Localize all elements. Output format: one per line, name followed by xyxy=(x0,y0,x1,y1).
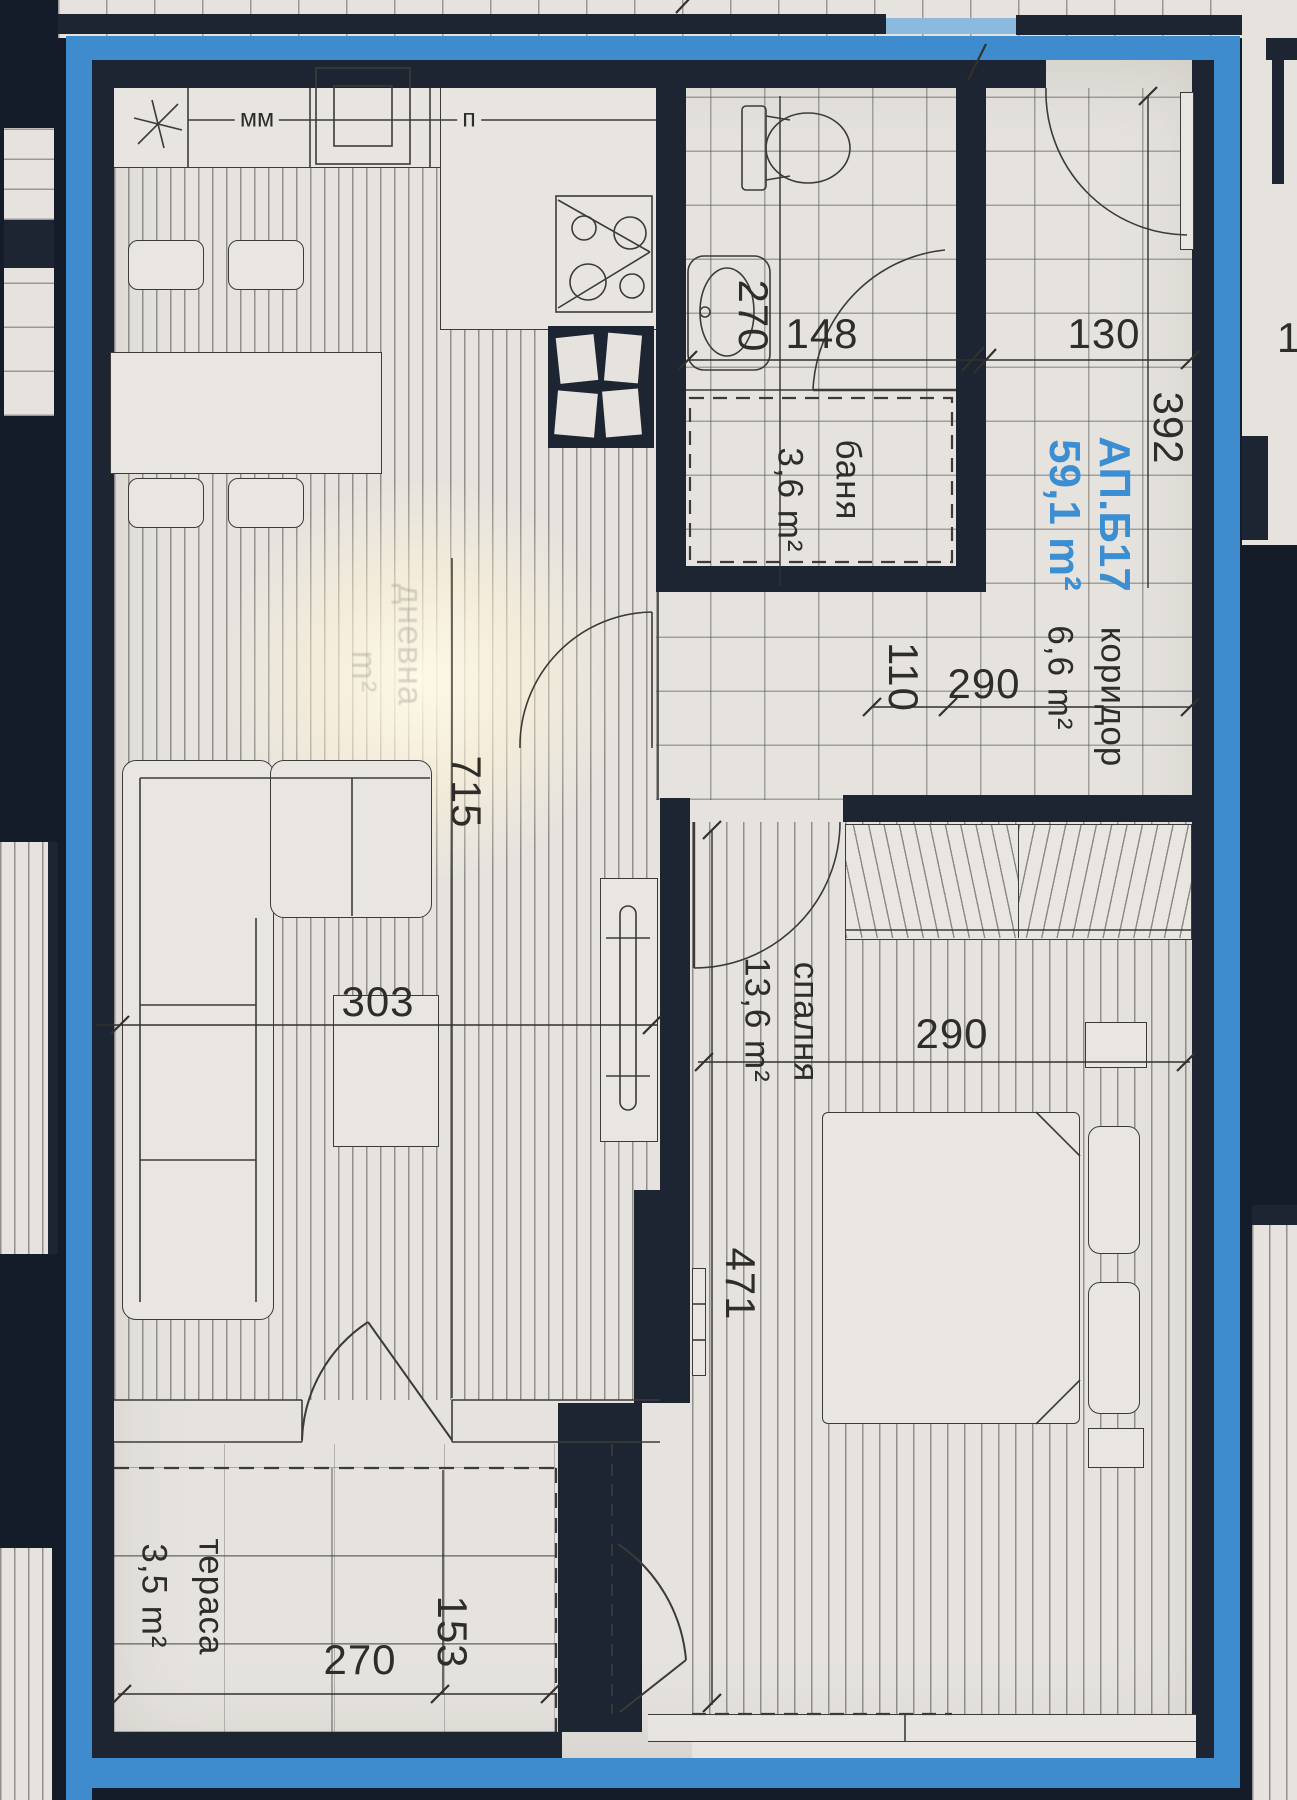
sofa-vertical-arm xyxy=(122,760,274,1320)
shaft-cell xyxy=(604,333,642,384)
neighbor-fragment-left-3 xyxy=(0,842,58,1254)
frame-left xyxy=(66,36,92,1800)
wardrobe xyxy=(845,824,1192,940)
room-area-living: m² xyxy=(347,651,382,694)
room-area-bathroom: 3,6 m² xyxy=(773,447,808,552)
wall-bedroom-top xyxy=(843,795,1192,822)
wall-right xyxy=(1192,60,1214,1758)
wall-terrace-bedroom xyxy=(558,1403,642,1732)
bedroom-sill-outer xyxy=(692,1742,1196,1758)
terrace-floor xyxy=(114,1444,556,1732)
wall-living-bedroom-2 xyxy=(634,1190,690,1403)
room-area-corridor: 6,6 m² xyxy=(1043,625,1078,730)
nightstand xyxy=(1088,1428,1144,1468)
dining-chair xyxy=(228,240,304,290)
room-name-bathroom: баня xyxy=(831,440,866,521)
dim-terrace-depth: 153 xyxy=(431,1595,473,1668)
dining-chair xyxy=(128,478,204,528)
frame-bottom xyxy=(66,1758,1240,1788)
shaft-cell xyxy=(602,389,642,438)
dining-chair xyxy=(128,240,204,290)
dim-bath-width: 148 xyxy=(785,313,858,355)
dim-corridor-length: 392 xyxy=(1147,391,1189,464)
bed xyxy=(822,1112,1080,1424)
dining-table xyxy=(110,352,382,474)
dim-bath-height: 270 xyxy=(732,279,774,352)
frame-top xyxy=(66,36,1240,60)
wall-living-bedroom-1 xyxy=(660,798,690,1190)
dim-door-offset: 110 xyxy=(882,642,924,712)
room-name-living: дневна xyxy=(393,584,428,707)
wall-bath-right xyxy=(956,60,986,592)
room-area-terrace: 3,5 m² xyxy=(137,1543,172,1648)
wall-bath-bottom xyxy=(656,566,986,592)
wall-left xyxy=(92,60,114,1758)
dining-chair xyxy=(228,478,304,528)
entrance-door-leaf xyxy=(1180,92,1194,250)
room-name-bedroom: спалня xyxy=(789,962,824,1083)
top-gap-highlight xyxy=(886,18,1016,34)
sofa-horizontal-arm xyxy=(270,760,432,918)
neighbor-fragment-left-2 xyxy=(4,268,54,416)
shaft-cell xyxy=(556,334,599,384)
dim-corridor-width: 290 xyxy=(947,663,1020,705)
room-area-bedroom: 13,6 m² xyxy=(740,957,775,1083)
tv-unit xyxy=(600,878,658,1142)
wardrobe-hatch xyxy=(1018,825,1191,938)
pillow xyxy=(1088,1126,1140,1254)
dim-right-edge-partial: 1 xyxy=(1277,317,1297,359)
neighbor-fragment-left-1 xyxy=(4,128,54,220)
frame-right xyxy=(1214,36,1240,1788)
apartment-total-area: 59,1 m² xyxy=(1042,439,1086,591)
neighbor-fragment-left-4 xyxy=(0,1548,52,1800)
bedroom-sill xyxy=(648,1714,1196,1742)
wall-top-left-segment xyxy=(92,60,1046,88)
wardrobe-hatch xyxy=(846,825,1018,938)
pillow xyxy=(1088,1282,1140,1414)
radiator xyxy=(692,1268,706,1376)
dim-terrace-width: 270 xyxy=(323,1639,396,1681)
room-name-corridor: коридор xyxy=(1096,627,1131,768)
dim-living-width: 303 xyxy=(341,981,414,1023)
nightstand xyxy=(1085,1022,1147,1068)
wall-bottom-terrace xyxy=(92,1732,562,1758)
dim-entrance-width: 130 xyxy=(1067,313,1140,355)
floor-plan-photo: 1 xyxy=(0,0,1297,1800)
dim-bedroom-length: 471 xyxy=(719,1247,761,1320)
dim-living-length: 715 xyxy=(445,755,487,828)
dim-bedroom-width: 290 xyxy=(915,1013,988,1055)
kitchen-label-p: п xyxy=(457,106,481,133)
wall-bath-left xyxy=(656,60,686,592)
room-name-terrace: тераса xyxy=(194,1539,229,1656)
apartment-id: АП.Б17 xyxy=(1092,436,1136,592)
shaft-cell xyxy=(554,390,598,437)
neighbor-fragment-right-bottom xyxy=(1252,1205,1297,1800)
kitchen-label-mm: мм xyxy=(235,106,279,133)
